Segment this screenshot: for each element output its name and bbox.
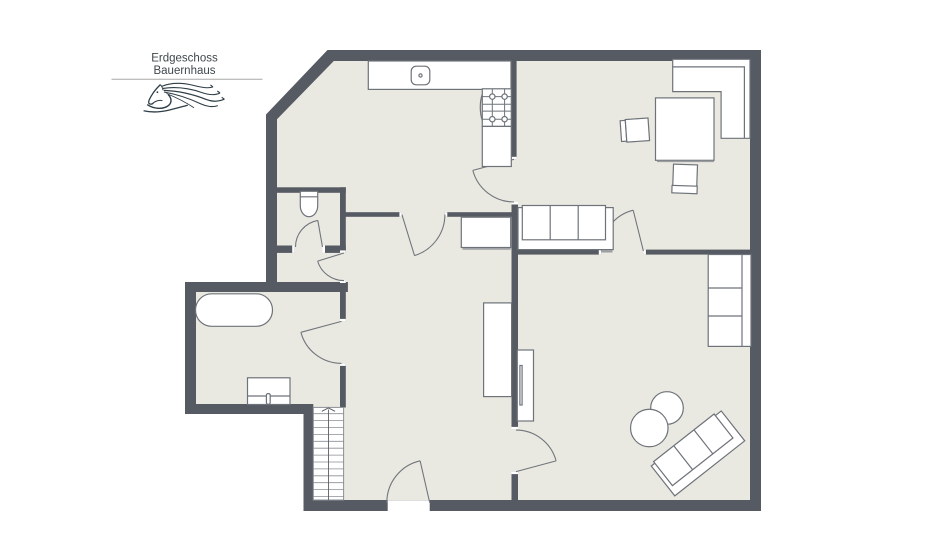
svg-text:Erdgeschoss: Erdgeschoss	[151, 53, 218, 65]
svg-text:Bauernhaus: Bauernhaus	[153, 65, 215, 77]
